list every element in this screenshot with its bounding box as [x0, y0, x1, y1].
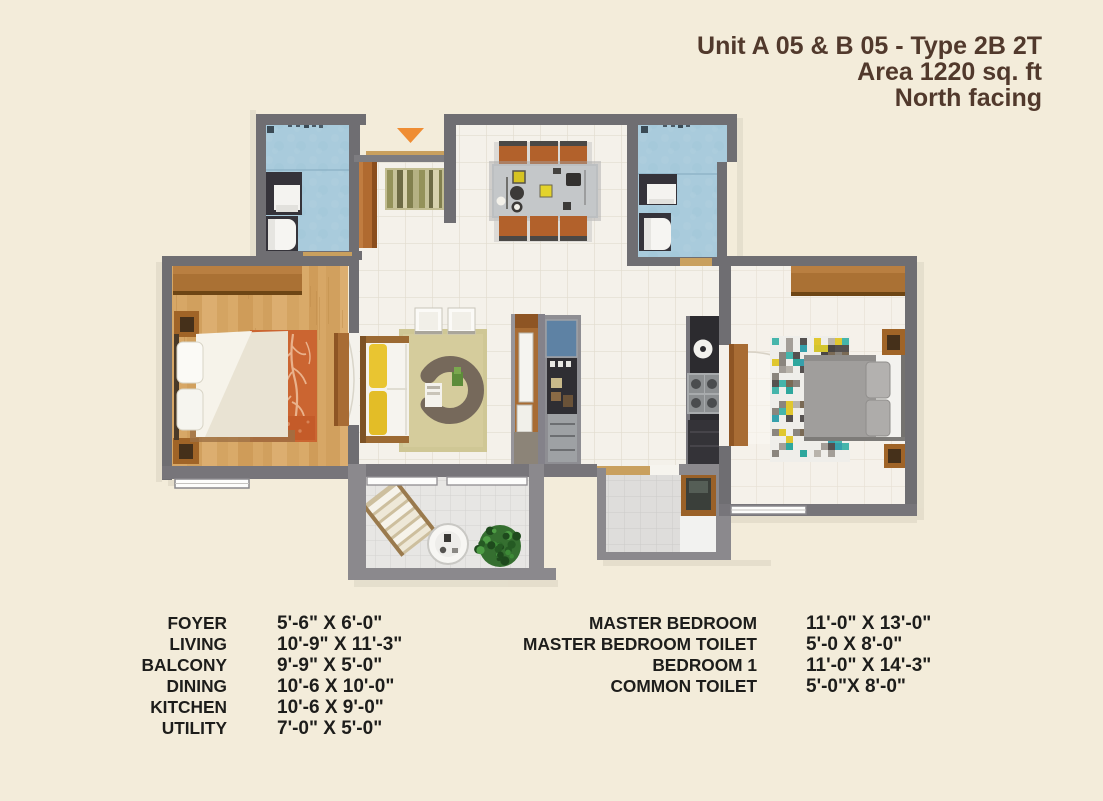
svg-text:COMMON TOILET: COMMON TOILET: [610, 676, 757, 696]
svg-text:9'-9" X 5'-0": 9'-9" X 5'-0": [277, 655, 382, 676]
svg-text:5'-0 X 8'-0": 5'-0 X 8'-0": [806, 634, 902, 655]
svg-text:Area 1220 sq. ft: Area 1220 sq. ft: [857, 58, 1042, 86]
svg-text:BALCONY: BALCONY: [142, 655, 228, 675]
svg-text:LIVING: LIVING: [169, 634, 227, 654]
svg-text:MASTER BEDROOM TOILET: MASTER BEDROOM TOILET: [523, 634, 757, 654]
svg-text:10'-9" X 11'-3": 10'-9" X 11'-3": [277, 634, 402, 655]
svg-text:FOYER: FOYER: [167, 613, 227, 633]
svg-text:11'-0" X 13'-0": 11'-0" X 13'-0": [806, 613, 931, 634]
svg-text:Unit A 05 & B 05 - Type 2B 2T: Unit A 05 & B 05 - Type 2B 2T: [697, 32, 1042, 60]
svg-text:7'-0" X 5'-0": 7'-0" X 5'-0": [277, 718, 382, 739]
svg-text:UTILITY: UTILITY: [162, 718, 228, 738]
svg-text:10'-6 X 9'-0": 10'-6 X 9'-0": [277, 697, 384, 718]
svg-text:5'-6" X 6'-0": 5'-6" X 6'-0": [277, 613, 382, 634]
svg-text:DINING: DINING: [167, 676, 227, 696]
svg-text:BEDROOM 1: BEDROOM 1: [652, 655, 757, 675]
svg-text:11'-0" X 14'-3": 11'-0" X 14'-3": [806, 655, 931, 676]
svg-text:North facing: North facing: [895, 84, 1042, 112]
svg-text:KITCHEN: KITCHEN: [150, 697, 227, 717]
svg-text:10'-6 X 10'-0": 10'-6 X 10'-0": [277, 676, 394, 697]
svg-text:MASTER BEDROOM: MASTER BEDROOM: [589, 613, 757, 633]
svg-text:5'-0"X 8'-0": 5'-0"X 8'-0": [806, 676, 906, 697]
